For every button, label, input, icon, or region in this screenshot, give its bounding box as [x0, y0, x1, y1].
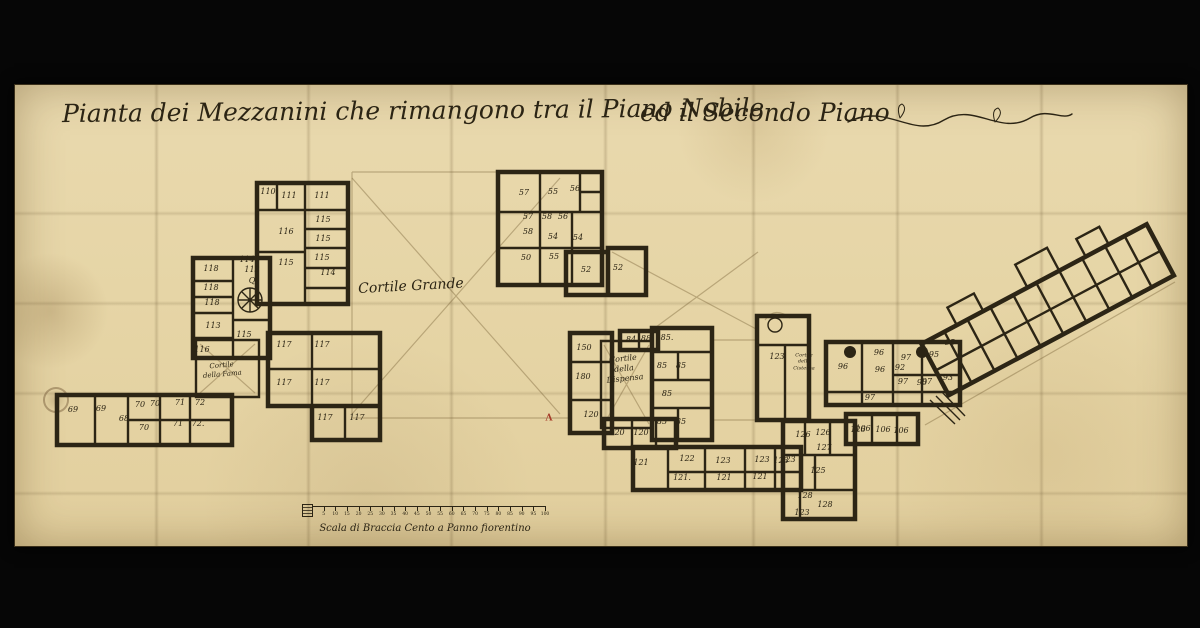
scale-tick — [463, 506, 464, 511]
room-number: 72. — [192, 420, 205, 428]
scale-tick — [545, 506, 546, 511]
room-number: 58 — [542, 213, 552, 221]
room-number: 121 — [633, 459, 648, 467]
room-number: 85 — [676, 418, 686, 426]
cortile-della-fama-label: Cortiledella Fama — [202, 360, 242, 381]
room-number: 85 — [662, 390, 672, 398]
room-number: 106 — [875, 426, 890, 434]
scale-tick — [324, 506, 325, 511]
scale-tick-label: 85 — [507, 512, 513, 517]
room-number: 150 — [576, 344, 591, 352]
scale-tick — [429, 506, 430, 511]
room-number: 85 — [676, 362, 686, 370]
red-annotation-mark: Λ — [546, 415, 553, 424]
scale-tick-label: 40 — [402, 512, 408, 517]
cortile-della-dispensa-label: CortiledellaDispensa — [604, 352, 644, 386]
room-number: 70 — [135, 401, 145, 409]
room-number: 96 — [874, 349, 884, 357]
room-number: 117 — [314, 341, 329, 349]
room-number: 116 — [194, 346, 209, 354]
room-number: 71 — [173, 420, 183, 428]
scale-tick-label: 55 — [437, 512, 443, 517]
room-number: 54 — [573, 234, 583, 242]
room-number: 123 — [780, 456, 795, 464]
room-number: 128 — [797, 492, 812, 500]
room-number: 125 — [810, 467, 825, 475]
room-number: 118 — [203, 265, 218, 273]
scale-tick — [359, 506, 360, 511]
room-number: 128 — [817, 501, 832, 509]
scale-tick — [475, 506, 476, 511]
room-number: 115 — [315, 216, 330, 224]
scanned-plan-page: Pianta dei Mezzanini che rimangono tra i… — [0, 0, 1200, 628]
scale-tick-label: 50 — [426, 512, 432, 517]
room-number: 69 — [68, 406, 78, 414]
room-number: 97 — [898, 378, 908, 386]
room-number: 120 — [633, 429, 648, 437]
room-number: 118 — [203, 284, 218, 292]
room-number: 127 — [816, 444, 831, 452]
room-number: 114 — [239, 256, 254, 264]
scale-tick-label: 65 — [461, 512, 467, 517]
scale-tick — [487, 506, 488, 511]
room-number: 123 — [794, 509, 809, 517]
room-number: 106 — [893, 427, 908, 435]
scale-tick-label: 5 — [322, 512, 325, 517]
room-number: 116 — [278, 228, 293, 236]
room-number: 68 — [119, 415, 129, 423]
scale-caption: Scala di Braccia Cento a Panno fiorentin… — [300, 523, 550, 534]
room-number: 123 — [769, 353, 784, 361]
scale-tick-label: 75 — [484, 512, 490, 517]
room-number: 57 — [519, 189, 529, 197]
room-number: 97 — [901, 354, 911, 362]
room-number: 117 — [349, 414, 364, 422]
room-number: 52 — [581, 266, 591, 274]
scale-tick — [382, 506, 383, 511]
room-number: 121 — [716, 474, 731, 482]
room-number: 115 — [236, 331, 251, 339]
room-number: 92 — [895, 364, 905, 372]
room-number: 72 — [195, 399, 205, 407]
room-number: 57 — [523, 213, 533, 221]
room-number: 120 — [609, 429, 624, 437]
room-number: 123 — [715, 457, 730, 465]
room-number: 111 — [281, 192, 296, 200]
room-number: 117 — [276, 379, 291, 387]
scale-tick-label: 20 — [356, 512, 362, 517]
room-number: 71 — [175, 399, 185, 407]
room-number: 113 — [244, 266, 259, 274]
room-number: 115 — [315, 235, 330, 243]
room-number: 126 — [815, 429, 830, 437]
room-number: 70 — [139, 424, 149, 432]
room-number: 180 — [575, 373, 590, 381]
scale-tick-label: 90 — [519, 512, 525, 517]
scale-tick-label: 15 — [344, 512, 350, 517]
room-number: Q — [249, 277, 256, 285]
room-number: 96 — [838, 363, 848, 371]
room-number: 84 — [626, 336, 636, 344]
room-number: 95 — [945, 339, 955, 347]
scale-tick-label: 35 — [391, 512, 397, 517]
room-number: 56 — [558, 213, 568, 221]
room-number: 115 — [278, 259, 293, 267]
room-number: 69 — [96, 405, 106, 413]
cortile-della-cisterna-label: CortiledellaCisterna — [793, 353, 815, 372]
scale-tick — [452, 506, 453, 511]
scale-tick-label: 25 — [367, 512, 373, 517]
scale-tick-label: 95 — [530, 512, 536, 517]
scale-tick — [440, 506, 441, 511]
room-number: 97 — [922, 378, 932, 386]
room-number: 106 — [855, 425, 870, 433]
scale-tick-label: 45 — [414, 512, 420, 517]
scale-bar: 5101520253035404550556065707580859095100 — [302, 506, 545, 522]
room-number: 85 — [657, 418, 667, 426]
room-number: 121. — [673, 474, 691, 482]
room-number: 120 — [583, 411, 598, 419]
room-number: 55 — [549, 253, 559, 261]
room-number: 117 — [276, 341, 291, 349]
room-number: 126 — [795, 431, 810, 439]
floor-plan-drawing — [0, 0, 1200, 628]
room-number: 50 — [521, 254, 531, 262]
scale-tick — [370, 506, 371, 511]
scale-tick — [417, 506, 418, 511]
room-number: 117 — [314, 379, 329, 387]
room-number: 55 — [548, 188, 558, 196]
room-number: 56 — [570, 185, 580, 193]
room-number: 85 — [657, 362, 667, 370]
scale-tick-label: 70 — [472, 512, 478, 517]
scale-tick-label: 60 — [449, 512, 455, 517]
room-number: 118 — [204, 299, 219, 307]
scale-tick — [405, 506, 406, 511]
room-number: 114 — [320, 269, 335, 277]
room-number: 97 — [865, 394, 875, 402]
scale-tick — [510, 506, 511, 511]
room-number: 113 — [205, 322, 220, 330]
room-number: 95 — [929, 351, 939, 359]
room-number: 111 — [314, 192, 329, 200]
scale-tick — [394, 506, 395, 511]
courtyard-label-line: Cisterna — [793, 365, 815, 371]
room-number: 70 — [150, 400, 160, 408]
scale-tick — [347, 506, 348, 511]
scale-tick-label: 30 — [379, 512, 385, 517]
room-number: 121 — [752, 473, 767, 481]
scale-tick — [533, 506, 534, 511]
room-number: 110 — [260, 188, 275, 196]
room-number: 96 — [875, 366, 885, 374]
scale-tick-label: 10 — [332, 512, 338, 517]
room-number: 122 — [679, 455, 694, 463]
room-number: 115 — [314, 254, 329, 262]
title-flourish — [848, 114, 1072, 126]
scale-tick — [335, 506, 336, 511]
scale-tick — [498, 506, 499, 511]
room-number: 85. — [661, 334, 674, 342]
scale-tick — [522, 506, 523, 511]
scale-tick-label: 100 — [541, 512, 550, 517]
scale-tick-label: 80 — [496, 512, 502, 517]
room-number: 52 — [613, 264, 623, 272]
room-number: 54 — [548, 233, 558, 241]
room-number: 123 — [754, 456, 769, 464]
room-number: 117 — [317, 414, 332, 422]
room-number: 93 — [943, 374, 953, 382]
room-number: 88 — [641, 335, 651, 343]
room-number: 58 — [523, 228, 533, 236]
